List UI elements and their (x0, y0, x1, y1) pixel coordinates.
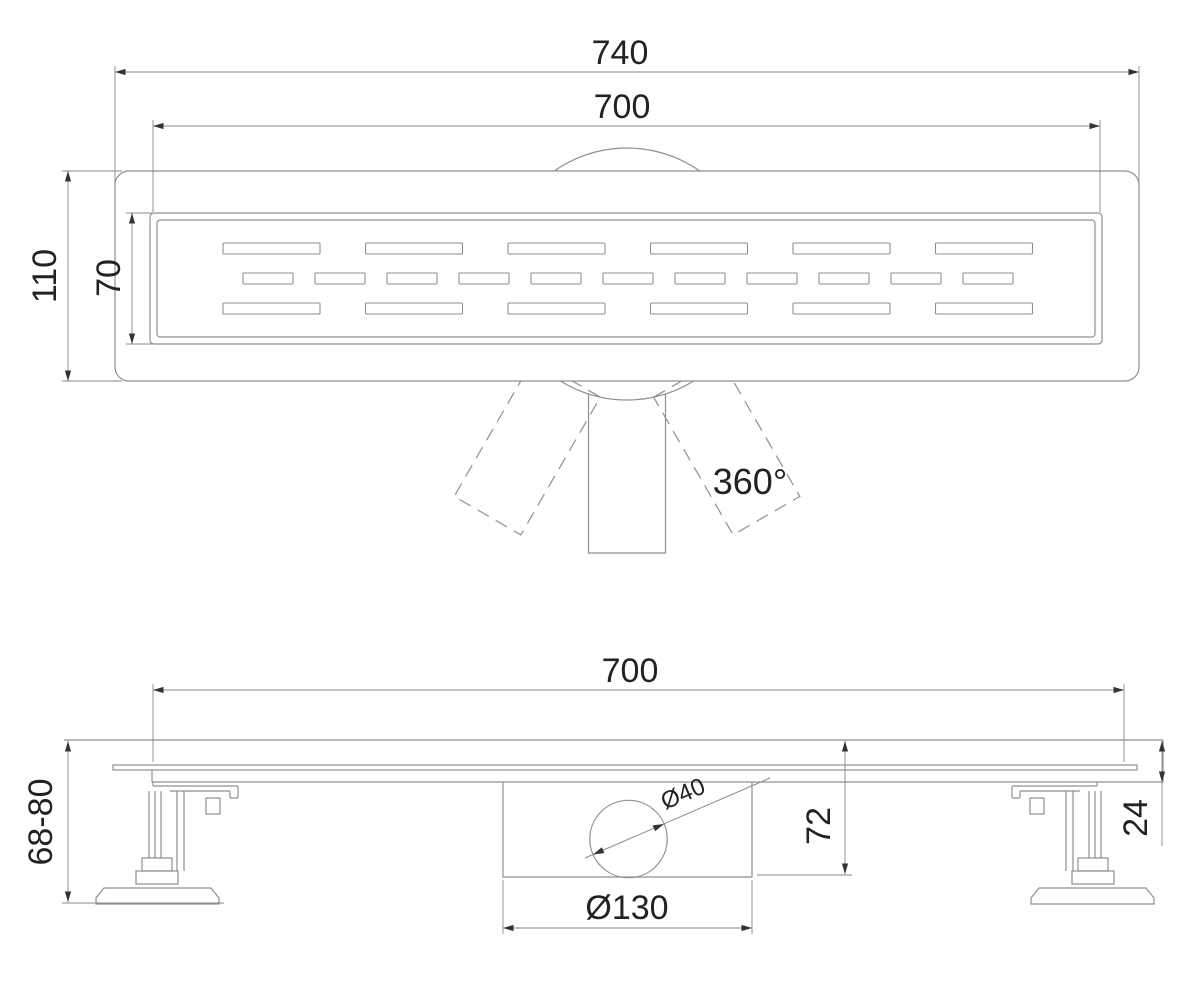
grate-slot (603, 273, 653, 284)
foot-assembly-left (96, 782, 238, 904)
dim-trap-diameter: Ø130 (503, 880, 752, 934)
dim-trap-height: 72 (757, 741, 852, 875)
grate-plate-edge (113, 765, 1137, 770)
outlet-rotated-left-dashed (454, 359, 600, 535)
clamp-screw (206, 798, 220, 814)
grate-slot (793, 303, 890, 314)
dim-grate-length-side-label: 700 (602, 652, 659, 690)
dim-trap-diameter-label: Ø130 (585, 889, 668, 927)
grate-slot (366, 303, 463, 314)
foot-base (96, 888, 219, 904)
side-view: Ø40 700 (22, 652, 1163, 934)
grate-slot (963, 273, 1013, 284)
grate-slot (651, 303, 748, 314)
grate-slot (891, 273, 941, 284)
drain-drawing-svg: 740 700 110 70 360° (0, 0, 1200, 989)
grate-slot (747, 273, 797, 284)
dim-outlet-diameter: Ø40 (585, 773, 770, 858)
grate-slot (651, 243, 748, 254)
grate-slot (936, 303, 1033, 314)
adjust-nut-upper (142, 858, 172, 871)
adjust-nut-lower (136, 871, 178, 884)
dim-grate-width-label: 70 (90, 259, 128, 297)
dim-overall-length-label: 740 (592, 34, 649, 72)
dim-trap-height-label: 72 (800, 807, 838, 845)
dim-grate-length-top-label: 700 (594, 88, 651, 126)
grate-slot (243, 273, 293, 284)
dim-grate-length-side: 700 (153, 652, 1124, 762)
grate-slot (531, 273, 581, 284)
grate-slot (936, 243, 1033, 254)
grate-slot (675, 273, 725, 284)
technical-drawing-page: 740 700 110 70 360° (0, 0, 1200, 989)
dim-rim-height-label: 24 (1117, 799, 1155, 837)
grate-slot (315, 273, 365, 284)
grate-slot (366, 243, 463, 254)
dim-outlet-diameter-label: Ø40 (657, 773, 709, 816)
grate-slot (508, 243, 605, 254)
trap-body (503, 782, 752, 877)
grate-slot (387, 273, 437, 284)
top-view: 740 700 110 70 360° (26, 34, 1139, 553)
grate-slot (459, 273, 509, 284)
grate-slot (508, 303, 605, 314)
rotation-label: 360° (713, 461, 787, 502)
outlet-rotated-right-dashed (654, 359, 800, 535)
grate-slot (223, 303, 320, 314)
dim-install-height-label: 68-80 (22, 779, 60, 866)
dim-overall-width-label: 110 (26, 249, 64, 303)
grate-slot (793, 243, 890, 254)
grate-slot (223, 243, 320, 254)
outlet-pipe (589, 394, 666, 553)
grate-slot (819, 273, 869, 284)
